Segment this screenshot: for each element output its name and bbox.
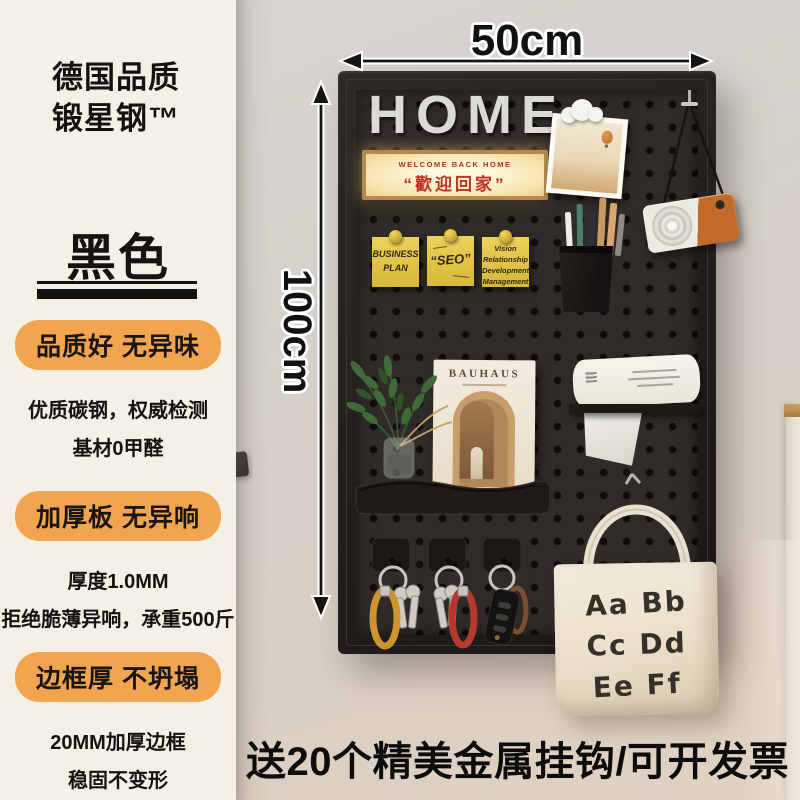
feature-frame: 边框厚 不坍塌 20MM加厚边框 稳固不变形 <box>0 652 236 793</box>
pen-holder-cup <box>557 246 615 312</box>
underline-thick <box>37 289 197 299</box>
sticky-note-seo: “SEO” <box>427 236 474 286</box>
feature-badge-frame: 边框厚 不坍塌 <box>15 652 221 702</box>
tissue-box <box>572 354 701 409</box>
welcome-sign-english: WELCOME BACK HOME <box>366 160 544 169</box>
magazine-subtitle-line <box>462 384 506 386</box>
height-dimension-label: 100cm <box>277 251 319 411</box>
feature-quality-line1: 优质碳钢，权威检测 <box>0 394 236 423</box>
welcome-sign-chinese: “歡迎回家” <box>366 170 544 195</box>
brand-text: 德国品质 锻星钢™ <box>52 58 180 140</box>
pushpin-icon <box>389 230 402 243</box>
feature-quality-line2: 基材0甲醛 <box>0 432 236 461</box>
bag-letters-line1: Aa Bb <box>554 583 719 624</box>
home-letters: HOME <box>368 84 566 146</box>
sticky-note-vision: Vision Relationship Development Manageme… <box>482 237 529 287</box>
variant-underline <box>37 281 197 299</box>
brand-line2: 锻星钢™ <box>52 99 180 140</box>
camera-hook <box>680 90 698 108</box>
color-variant-title: 黑色 <box>0 218 236 290</box>
bag-letters-line3: Ee Ff <box>555 665 720 706</box>
tote-bag: Aa Bb Cc Dd Ee Ff <box>548 468 733 733</box>
feature-thickness-line2: 拒绝脆薄异响，承重500斤 <box>0 603 236 632</box>
brand-line1: 德国品质 <box>52 58 180 99</box>
postcard <box>546 113 629 199</box>
potted-plant <box>336 350 456 485</box>
info-panel: 德国品质 锻星钢™ 黑色 品质好 无异味 优质碳钢，权威检测 基材0甲醛 加厚板… <box>0 0 236 800</box>
wall-corner-shadow <box>236 0 270 800</box>
scribble <box>433 246 447 249</box>
bag-letters-line2: Cc Dd <box>555 625 719 664</box>
sticky-note-text: BUSINESS PLAN <box>372 248 419 276</box>
promo-slogan: 送20个精美金属挂钩/可开发票 <box>246 729 800 787</box>
pushpin-icon <box>444 229 457 242</box>
box-text-line <box>632 369 676 373</box>
sticky-note-text: “SEO” <box>427 250 475 268</box>
box-text-line <box>637 383 673 387</box>
bag-body: Aa Bb Cc Dd Ee Ff <box>554 562 720 717</box>
feature-badge-quality: 品质好 无异味 <box>15 320 221 370</box>
tissue-shelf <box>569 404 702 413</box>
cabinet-wood-top <box>784 404 800 417</box>
camera-lens-icon <box>649 203 695 249</box>
welcome-lightbox: WELCOME BACK HOME “歡迎回家” <box>362 150 548 200</box>
qr-mark <box>585 371 597 383</box>
feature-frame-line1: 20MM加厚边框 <box>0 726 236 755</box>
feature-frame-line2: 稳固不变形 <box>0 764 236 793</box>
cloud-clip <box>561 99 607 125</box>
feature-thickness-line1: 厚度1.0MM <box>0 565 236 594</box>
underline-thin <box>37 281 197 284</box>
sticky-note-text: Vision Relationship Development Manageme… <box>482 244 529 288</box>
box-text-line <box>628 376 680 381</box>
postcard-photo <box>551 118 623 193</box>
feature-badge-thickness: 加厚板 无异响 <box>15 491 221 541</box>
wave-tray-shelf <box>354 472 552 516</box>
hot-air-balloon <box>601 130 613 144</box>
feature-quality: 品质好 无异味 优质碳钢，权威检测 基材0甲醛 <box>0 320 236 461</box>
feature-thickness: 加厚板 无异响 厚度1.0MM 拒绝脆薄异响，承重500斤 <box>0 491 236 632</box>
sticky-note-business-plan: BUSINESS PLAN <box>372 237 419 287</box>
scribble <box>453 275 469 278</box>
width-dimension-label: 50cm <box>447 16 607 66</box>
camera-viewfinder <box>715 200 725 210</box>
product-image: 德国品质 锻星钢™ 黑色 品质好 无异味 优质碳钢，权威检测 基材0甲醛 加厚板… <box>0 0 800 800</box>
pushpin-icon <box>499 230 512 243</box>
